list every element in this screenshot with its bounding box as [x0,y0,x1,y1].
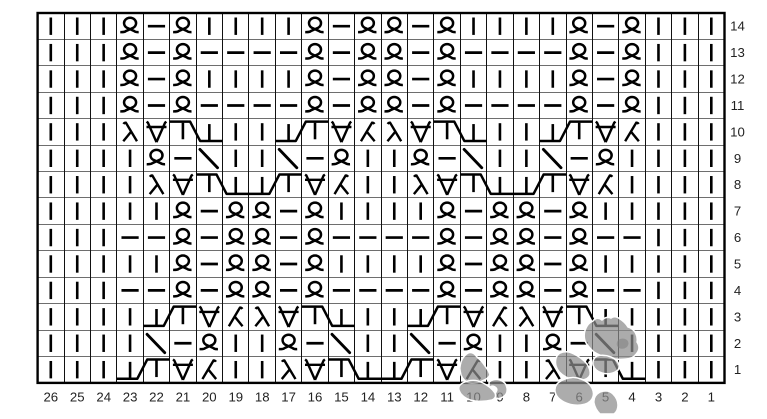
svg-text:2: 2 [681,390,688,405]
svg-text:4: 4 [734,283,741,298]
svg-text:11: 11 [731,98,745,113]
svg-text:16: 16 [308,390,323,405]
svg-text:6: 6 [734,230,741,245]
svg-text:1: 1 [734,362,741,377]
svg-text:2: 2 [734,336,741,351]
svg-text:13: 13 [387,390,402,405]
svg-text:12: 12 [413,390,428,405]
svg-text:20: 20 [202,390,217,405]
svg-text:14: 14 [361,390,376,405]
svg-text:22: 22 [149,390,164,405]
svg-text:17: 17 [281,390,296,405]
svg-text:3: 3 [655,390,662,405]
svg-text:24: 24 [96,390,111,405]
svg-text:14: 14 [730,19,745,34]
svg-text:25: 25 [70,390,85,405]
svg-text:5: 5 [734,257,741,272]
svg-text:26: 26 [43,390,58,405]
svg-text:12: 12 [730,72,745,87]
svg-text:13: 13 [730,45,745,60]
svg-text:4: 4 [628,390,635,405]
svg-text:8: 8 [523,390,530,405]
svg-text:18: 18 [255,390,270,405]
svg-text:9: 9 [734,151,741,166]
svg-text:19: 19 [228,390,243,405]
svg-text:3: 3 [734,309,741,324]
svg-text:11: 11 [440,390,454,405]
svg-text:10: 10 [730,124,745,139]
svg-text:23: 23 [123,390,138,405]
svg-text:21: 21 [176,390,191,405]
svg-text:1: 1 [708,390,715,405]
svg-text:8: 8 [734,177,741,192]
svg-text:15: 15 [334,390,349,405]
svg-text:7: 7 [734,204,741,219]
